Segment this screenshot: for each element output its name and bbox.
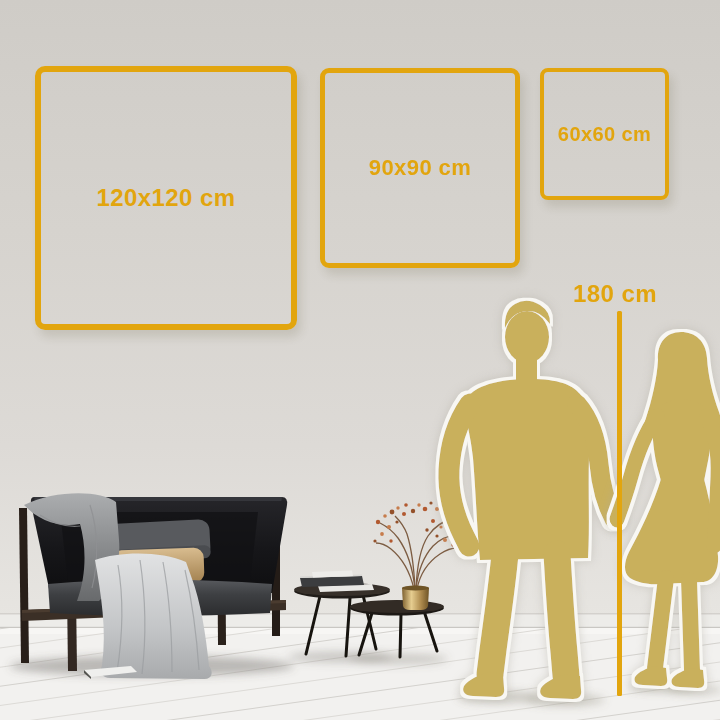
frame-outline-90: 90x90 cm [320, 68, 520, 268]
frame-outline-120: 120x120 cm [35, 66, 297, 330]
size-guide-scene: 120x120 cm 90x90 cm 60x60 cm 180 cm [0, 0, 720, 720]
frame-outline-60: 60x60 cm [540, 68, 669, 200]
height-marker-label: 180 cm [556, 280, 674, 308]
height-line [617, 311, 622, 696]
brass-vase [402, 585, 429, 610]
frame-size-label-60: 60x60 cm [558, 123, 651, 146]
frame-size-label-120: 120x120 cm [97, 184, 236, 212]
frame-size-label-90: 90x90 cm [369, 155, 471, 181]
